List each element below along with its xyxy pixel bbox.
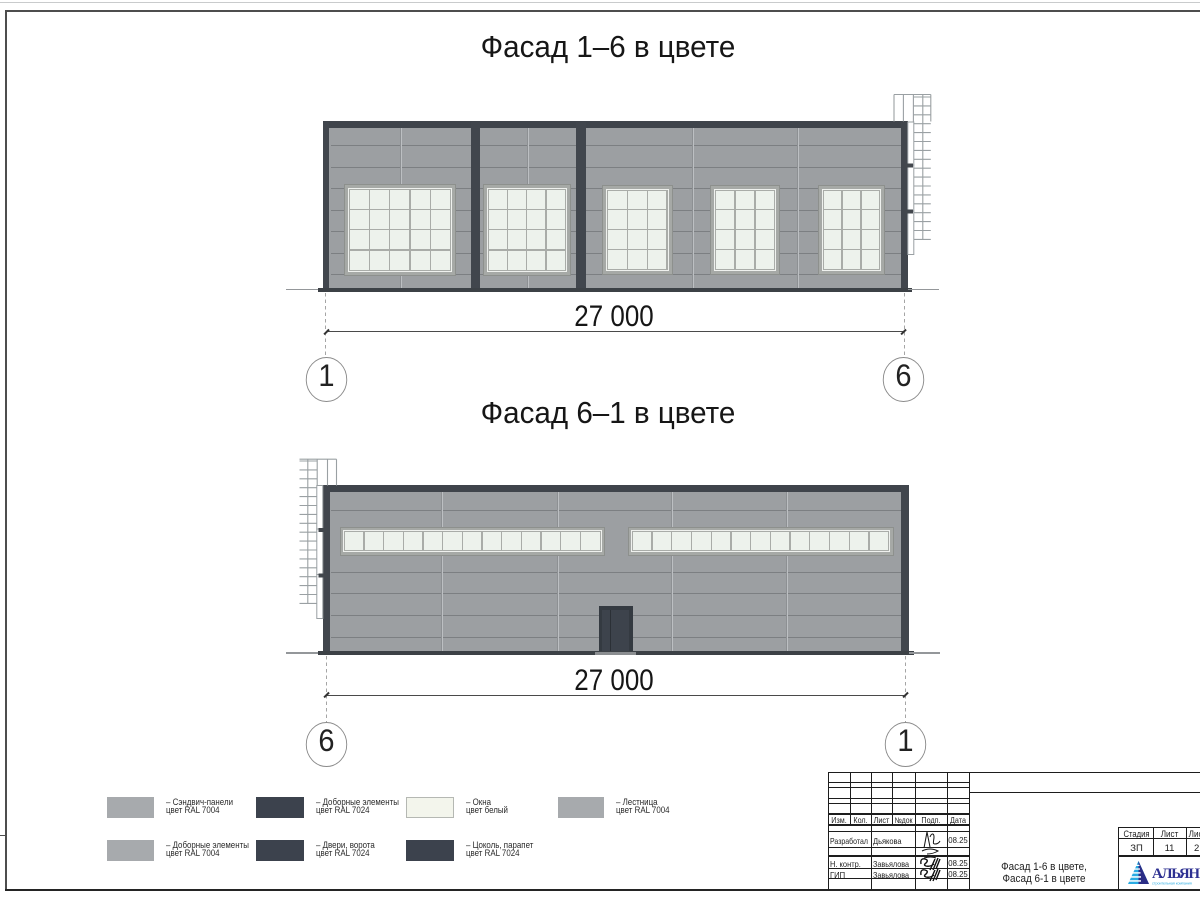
- svg-text:АЛЬЯН: АЛЬЯН: [1152, 866, 1200, 882]
- svg-text:строительная компания: строительная компания: [1152, 882, 1192, 886]
